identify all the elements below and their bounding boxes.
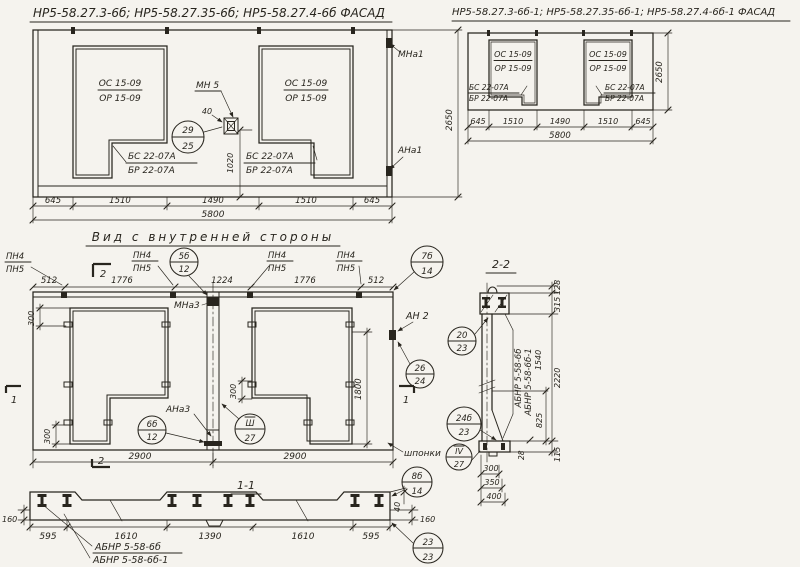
window-mark: ОР 15-09	[495, 64, 532, 73]
window-mark: ОС 15-09	[285, 79, 328, 89]
product-label: АБНР 5-58-6б	[94, 542, 161, 553]
dim: 1776	[294, 276, 316, 286]
embedded-channels	[482, 297, 506, 308]
sill-mark: БР 22-07А	[246, 166, 293, 176]
svg-text:ПН5: ПН5	[268, 264, 286, 274]
svg-text:23: 23	[423, 538, 434, 548]
dim: 512	[41, 276, 57, 286]
dim-2650: 2650	[655, 61, 665, 83]
section-1-1-view: 1-1 160 160 40	[2, 479, 443, 566]
svg-text:14: 14	[421, 267, 433, 277]
dim: 2900	[129, 452, 152, 462]
svg-text:23: 23	[457, 344, 468, 354]
section-2-2-title: 2-2	[492, 258, 510, 271]
window-mark: ОР 15-09	[99, 94, 141, 104]
section-1-1-title: 1-1	[237, 479, 255, 492]
dim-40: 40	[202, 107, 212, 116]
window-mark: ОР 15-09	[590, 64, 627, 73]
section-marker-1-left: 1	[6, 386, 21, 406]
dim-28: 28	[517, 450, 526, 460]
svg-text:12: 12	[147, 433, 158, 443]
dim: 2900	[284, 452, 307, 462]
callout-26-24: 26 24	[398, 342, 434, 388]
svg-text:ПН4: ПН4	[133, 251, 151, 261]
window-mark: ОС 15-09	[589, 50, 627, 59]
dim: 512	[368, 276, 384, 286]
callout-IV-27: IV 27	[446, 444, 480, 470]
dim: 400	[486, 492, 501, 501]
svg-text:12: 12	[179, 265, 190, 275]
product-label: АБНР 5-58-6б-1	[92, 555, 168, 566]
svg-text:ПН5: ПН5	[133, 264, 151, 274]
svg-text:29: 29	[182, 126, 194, 136]
facade-left-title: НР5-58.27.3-6б; НР5-58.27.35-6б; НР5-58.…	[33, 6, 385, 20]
dim-300: 300	[27, 311, 36, 326]
dim: 595	[362, 532, 379, 542]
svg-text:27: 27	[454, 460, 465, 469]
facade-right-view: НР5-58.27.3-6б-1; НР5-58.27.35-6б-1; НР5…	[452, 6, 790, 144]
anchor-label-ana3: АНа3	[165, 405, 190, 415]
svg-text:20: 20	[457, 331, 468, 341]
callout-7b-14: 7б 14	[394, 246, 443, 290]
dim-1540: 1540	[534, 350, 543, 370]
svg-text:IV: IV	[455, 447, 463, 456]
facade-left-view: НР5-58.27.3-6б; НР5-58.27.35-6б; НР5-58.…	[30, 6, 462, 223]
sill-mark: БР 22-07А	[605, 94, 644, 103]
window-mark: ОС 15-09	[494, 50, 532, 59]
sill-mark: БР 22-07А	[128, 166, 175, 176]
technical-drawing: НР5-58.27.3-6б; НР5-58.27.35-6б; НР5-58.…	[0, 0, 800, 567]
dim: 1610	[115, 532, 138, 542]
dim-total: 5800	[549, 131, 571, 141]
panel-outline	[33, 30, 392, 197]
sill-mark: БР 22-07А	[469, 94, 508, 103]
top-rib-section	[480, 293, 509, 314]
node-label-mn5: МН 5	[196, 81, 219, 91]
svg-text:Ш: Ш	[245, 419, 254, 429]
lifting-mark	[71, 27, 75, 34]
anchor-label-an2: АН 2	[405, 311, 429, 322]
dim: 1490	[202, 196, 224, 206]
lifting-mark	[165, 27, 169, 34]
svg-text:2: 2	[100, 269, 106, 280]
section-marker-2-top: 2	[93, 264, 111, 280]
dim: 1510	[109, 196, 131, 206]
inner-view-caption: Вид с внутренней стороны	[92, 230, 334, 244]
dim: 1510	[503, 117, 523, 126]
blueprint-page: НР5-58.27.3-6б; НР5-58.27.35-6б; НР5-58.…	[0, 0, 800, 567]
window-mark: ОР 15-09	[285, 94, 327, 104]
dim: 300	[483, 464, 498, 473]
facade-right-title: НР5-58.27.3-6б-1; НР5-58.27.35-6б-1; НР5…	[452, 6, 775, 18]
dim: 645	[45, 196, 61, 206]
callout-III-27: Ш 27	[222, 404, 265, 444]
dim-825: 825	[535, 413, 544, 428]
product-label: АБНР 5-58-6б-1	[524, 348, 534, 416]
sill-mark: БС 22-07А	[469, 83, 509, 92]
svg-text:ПН5: ПН5	[337, 264, 355, 274]
svg-text:ПН4: ПН4	[268, 251, 286, 261]
svg-text:ПН4: ПН4	[6, 252, 24, 262]
pn-label-2: ПН4 ПН5	[132, 251, 173, 285]
edge-anchor	[386, 166, 392, 176]
dim: 1510	[295, 196, 317, 206]
sill-mark: БС 22-07А	[128, 152, 176, 162]
pn-label-4: ПН4 ПН5	[336, 251, 362, 284]
beam-profile	[30, 492, 390, 520]
svg-text:1: 1	[11, 395, 17, 406]
dim: 595	[39, 532, 56, 542]
callout-6b-12: 6б 12	[138, 416, 204, 444]
svg-text:ПН5: ПН5	[6, 265, 24, 275]
dim: 350	[484, 478, 499, 487]
callout-5b-12: 5б 12	[170, 248, 207, 295]
svg-text:27: 27	[245, 434, 256, 444]
svg-text:25: 25	[182, 142, 194, 152]
svg-text:7б: 7б	[421, 252, 433, 262]
dim-2220: 2220	[553, 368, 562, 388]
window-opening-right	[252, 308, 352, 444]
sill-mark: БС 22-07А	[246, 152, 294, 162]
svg-text:14: 14	[412, 487, 423, 497]
dim-1020: 1020	[226, 153, 235, 173]
callout-24b-23: 24б 23	[447, 407, 496, 441]
svg-text:26: 26	[415, 364, 426, 374]
dim: 645	[635, 117, 650, 126]
dim: 645	[470, 117, 485, 126]
product-label: АБНР 5-58-6б	[514, 349, 524, 409]
dim-1800: 1800	[354, 378, 364, 400]
dim: 1490	[550, 117, 570, 126]
dim: 1610	[292, 532, 315, 542]
section-marker-2-bottom: 2	[92, 456, 110, 467]
dim: 1224	[211, 276, 233, 286]
window-mark: ОС 15-09	[99, 79, 142, 89]
dim: 645	[364, 196, 380, 206]
svg-text:24: 24	[415, 377, 426, 387]
dim: 1390	[199, 532, 222, 542]
callout-23-23: 23 23	[392, 523, 443, 563]
dim-40: 40	[393, 502, 402, 512]
dim-160: 160	[2, 515, 17, 524]
dim-total: 5800	[202, 210, 225, 220]
dim: 1510	[598, 117, 618, 126]
pn-label-3: ПН4 ПН5	[253, 251, 293, 285]
embedded-channels	[483, 443, 505, 450]
svg-text:5б: 5б	[179, 252, 190, 262]
callout-29-25: 29 25	[172, 121, 222, 153]
anchor-label-mna1: МНа1	[398, 50, 424, 60]
edge-anchor	[386, 38, 392, 48]
lifting-mark	[351, 27, 355, 34]
anchor-label-ana1: АНа1	[397, 146, 422, 156]
svg-text:2: 2	[98, 456, 104, 467]
lifting-mark	[257, 27, 261, 34]
svg-text:6б: 6б	[147, 420, 158, 430]
svg-text:24б: 24б	[456, 414, 472, 424]
svg-text:8б: 8б	[412, 472, 423, 482]
dim-2650: 2650	[445, 109, 455, 131]
lifting-loop	[488, 287, 497, 293]
inner-view: Вид с внутренней стороны ПН4 ПН5 ПН4 ПН5…	[5, 230, 480, 497]
section-marker-1-right: 1	[399, 386, 414, 406]
sill-mark: БС 22-07А	[605, 83, 645, 92]
dim-128: 128	[553, 280, 562, 295]
keys-label: шпонки	[404, 449, 441, 459]
dim-115: 115	[553, 447, 562, 462]
svg-text:ПН4: ПН4	[337, 251, 355, 261]
callout-8b-14: 8б 14	[392, 467, 432, 497]
dim-300: 300	[43, 429, 52, 444]
svg-text:23: 23	[423, 553, 434, 563]
node-label-mna3: МНа3	[174, 301, 200, 311]
dim-300: 300	[229, 384, 238, 399]
svg-text:1: 1	[403, 395, 409, 406]
svg-text:23: 23	[459, 428, 470, 438]
dim-315: 315	[553, 297, 562, 312]
dim-160: 160	[420, 515, 435, 524]
dim: 1776	[111, 276, 133, 286]
